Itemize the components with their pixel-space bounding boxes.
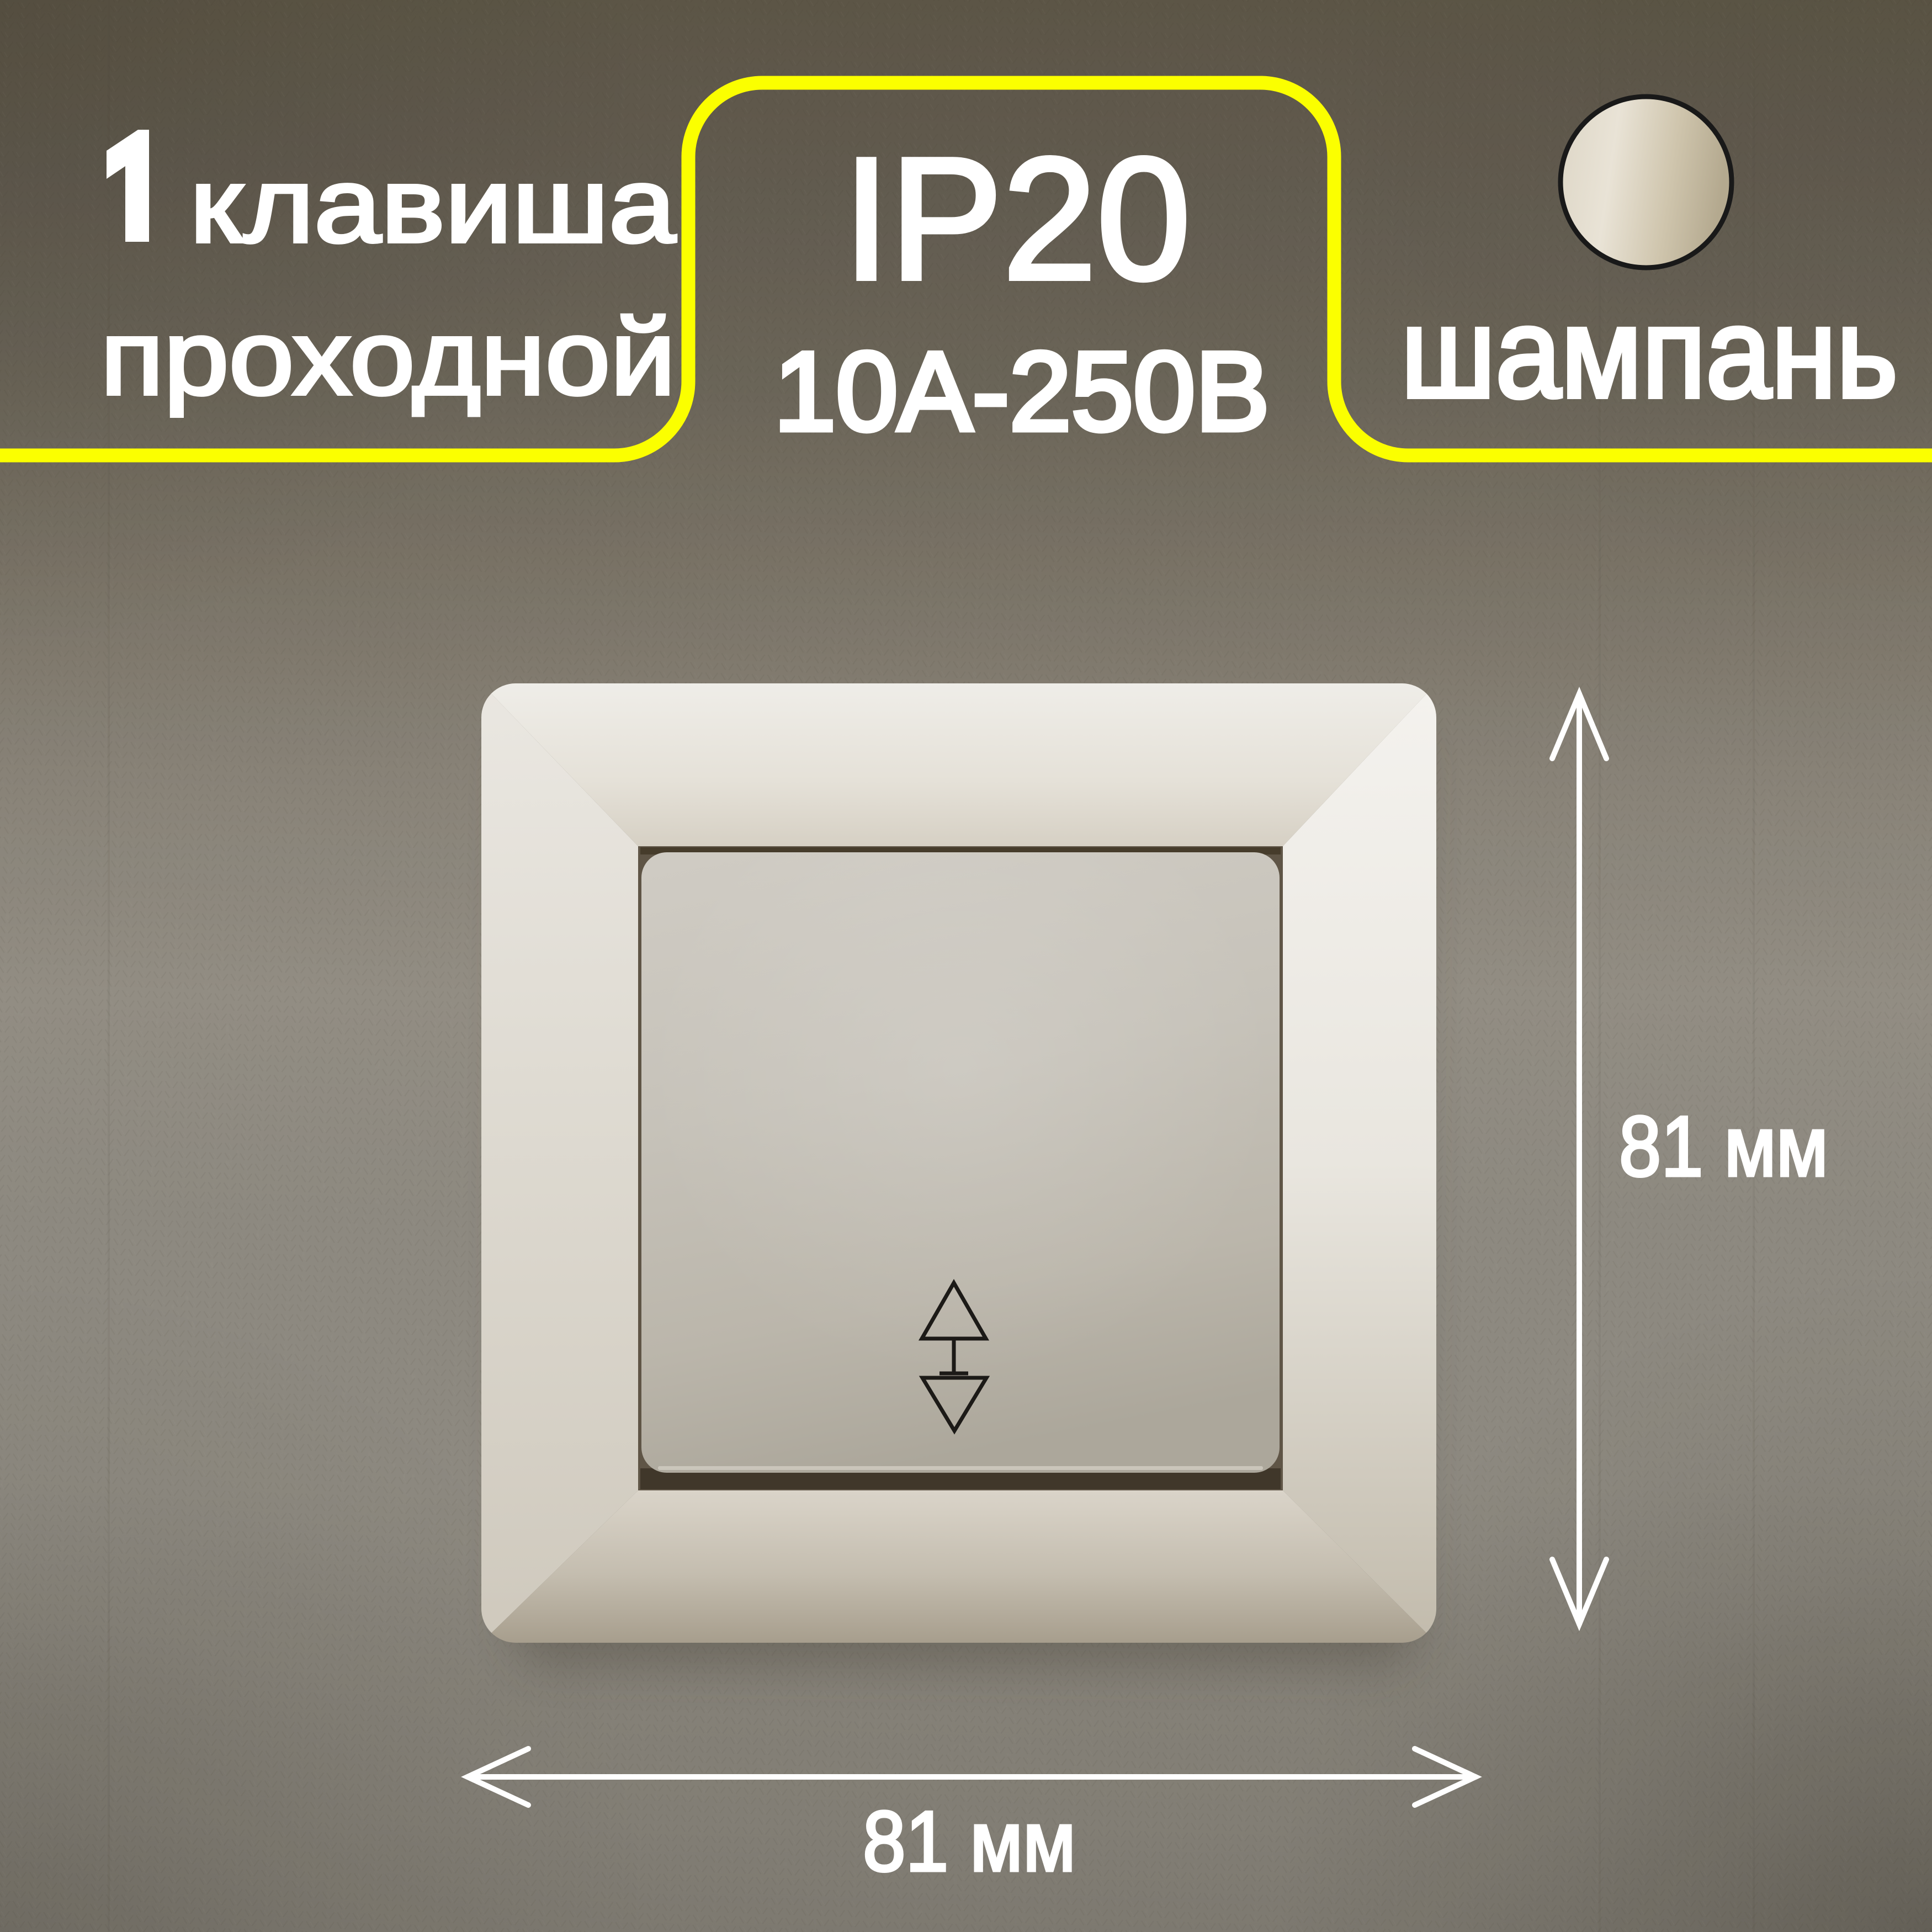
svg-text:81 мм: 81 мм — [863, 1793, 1076, 1889]
svg-text:клавиша: клавиша — [190, 145, 676, 264]
svg-text:IP20: IP20 — [843, 121, 1191, 316]
svg-text:проходной: проходной — [100, 298, 676, 417]
svg-text:10А-250В: 10А-250В — [774, 329, 1270, 454]
svg-text:81 мм: 81 мм — [1619, 1098, 1828, 1194]
svg-text:шампань: шампань — [1401, 281, 1898, 424]
